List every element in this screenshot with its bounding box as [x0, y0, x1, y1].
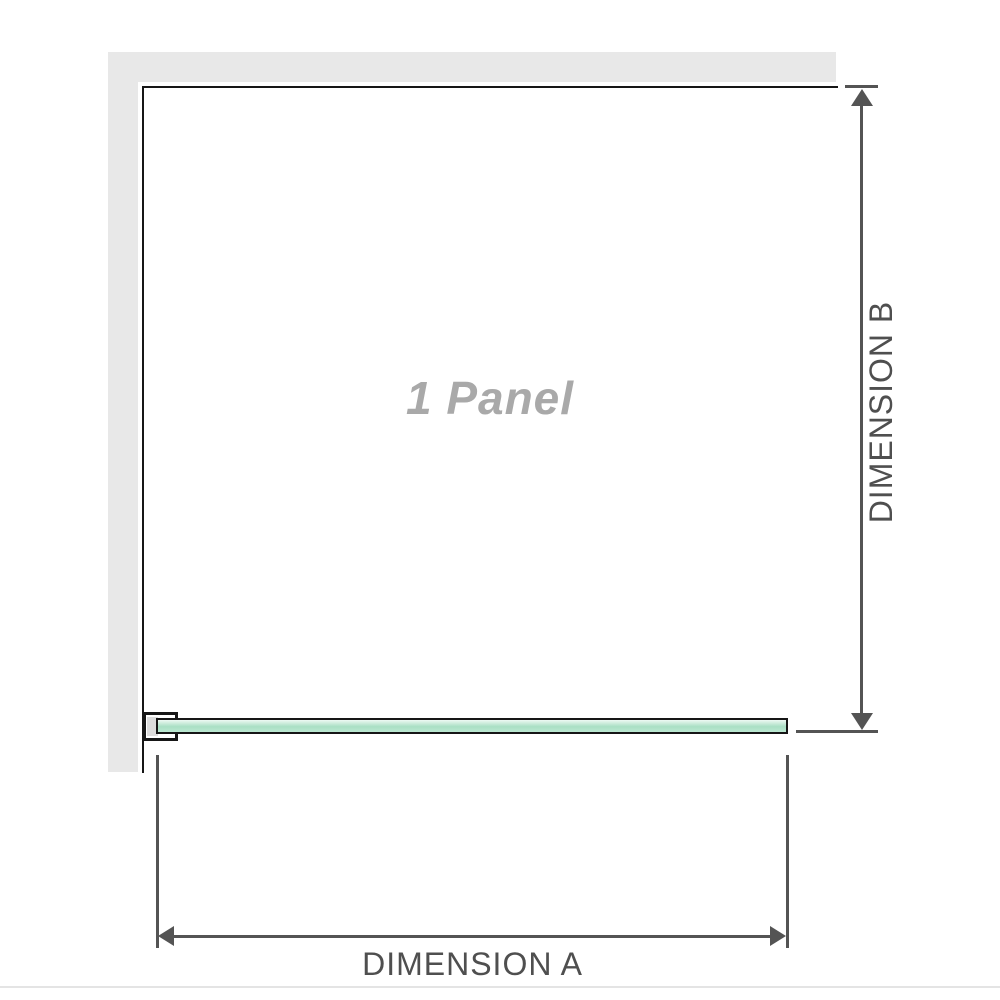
dimension-b-label: DIMENSION B — [864, 262, 898, 562]
wall-top-segment — [108, 52, 836, 82]
panel-outline — [142, 86, 838, 773]
panel-count-label: 1 Panel — [142, 372, 838, 424]
dimension-a-extension-right — [786, 755, 789, 948]
dimension-a-line — [170, 935, 775, 938]
arrow-up-icon — [851, 89, 873, 106]
bottom-divider — [0, 986, 1000, 988]
arrow-left-icon — [158, 926, 174, 946]
arrow-down-icon — [851, 713, 873, 730]
dimension-a-extension-left — [156, 755, 159, 948]
wall-left-segment — [108, 52, 138, 772]
dimension-b-tick-bottom — [796, 730, 878, 733]
dimension-a-label: DIMENSION A — [170, 946, 775, 982]
arrow-right-icon — [770, 926, 786, 946]
glass-panel-bar — [156, 718, 788, 734]
panel-dimension-diagram: 1 Panel DIMENSION B DIMENSION A — [0, 0, 1000, 1000]
dimension-b-tick-top — [845, 85, 878, 88]
